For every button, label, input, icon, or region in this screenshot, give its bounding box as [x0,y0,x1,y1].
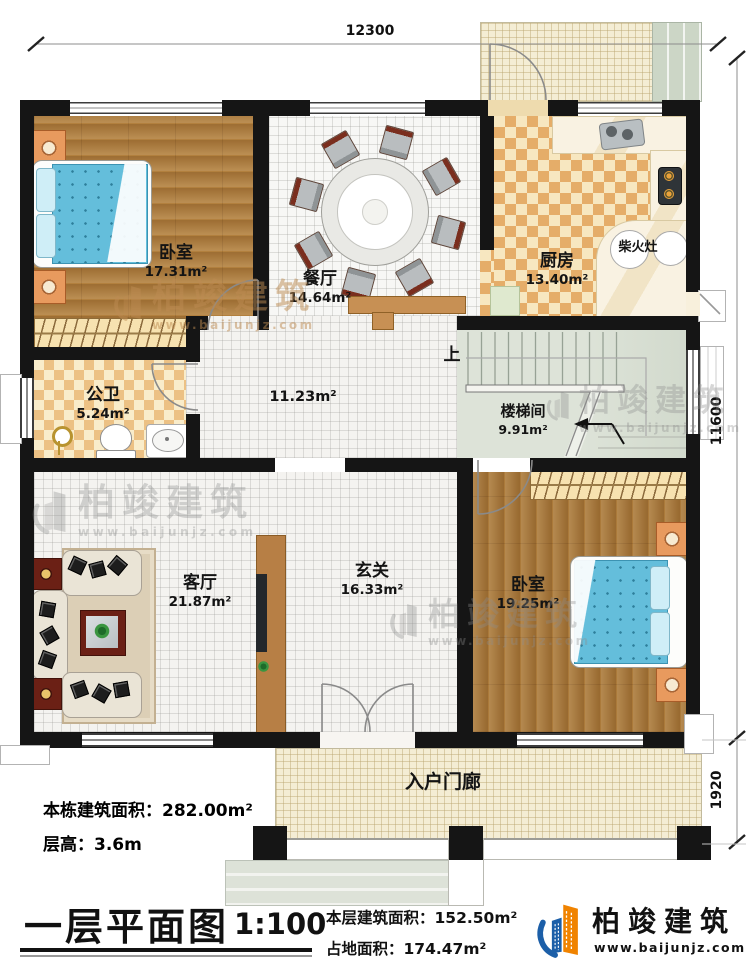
room-area: 5.24m² [76,406,129,424]
nightstand [656,668,688,702]
window [82,733,213,747]
wood-stove-label: 柴火灶 [618,240,657,257]
window [310,102,425,114]
window [578,102,662,114]
end-table [30,558,62,590]
wall [253,100,269,316]
nightstand [32,270,66,304]
room-area: 17.31m² [145,264,208,282]
title-underline-thin [20,955,312,957]
tv [256,574,267,652]
dimension-top: 12300 [346,23,395,39]
floor-drain [52,426,73,447]
floor-plan: 卧室 17.31m² 餐厅 14.64m² 厨房 13.40m² 柴火灶 公卫 … [0,0,750,970]
room-area: 13.40m² [526,272,589,290]
brand-logo-icon [534,898,586,960]
wall [530,458,686,472]
room-name: 玄关 [341,560,404,582]
nightstand [656,522,688,556]
room-name: 餐厅 [289,268,352,290]
room-name: 楼梯间 [498,402,547,422]
front-steps [225,860,453,906]
window [20,378,34,438]
stove-burner [664,171,674,181]
stove-burner [664,189,674,199]
bedroom-bottom-wardrobe [530,470,688,500]
room-label-stairwell: 楼梯间 9.91m² [498,402,547,438]
kitchen-appliance [490,286,520,316]
entry-porch-label: 入户门廊 [405,770,481,795]
hallway-floor [186,316,457,458]
entry-porch-floor [275,748,702,840]
brand-url: www.baijunjz.com [594,940,746,955]
door-opening [686,292,700,316]
window [517,733,643,747]
plant-small [258,660,269,673]
plant [93,622,111,640]
bed-pillow [650,612,670,656]
dimension-right-upper: 11600 [709,397,725,446]
bedroom-top-wardrobe [34,318,188,349]
room-name: 卧室 [145,242,208,264]
wall [480,100,494,250]
door-opening [488,100,548,116]
room-name: 客厅 [169,572,232,594]
room-area: 9.91m² [498,422,547,438]
wall [20,347,186,360]
sideboard [372,312,394,330]
wall [186,414,200,458]
wall [457,316,700,330]
side-door-step [698,290,726,322]
room-name: 卧室 [497,574,560,596]
room-label-foyer: 玄关 16.33m² [341,560,404,600]
room-label-kitchen: 厨房 13.40m² [526,250,589,290]
note-total-building-area: 本栋建筑面积：282.00m² [43,796,253,821]
basin-drain [165,437,169,441]
bed-pillow [36,168,56,212]
wall [457,458,473,748]
wall [425,100,488,116]
wall [20,458,275,472]
sideboard [348,296,466,314]
bed-blanket-fold [574,560,618,662]
end-table [30,678,62,710]
hallway-area-label: 11.23m² [269,388,336,407]
sofa-pillow [113,681,130,698]
brand-name: 柏竣建筑 [592,900,736,940]
note-floor-height: 层高：3.6m [43,830,142,855]
stairs-up-label: 上 [444,344,461,366]
room-label-bedroom-top: 卧室 17.31m² [145,242,208,282]
wall [258,316,269,330]
porch-column [677,826,711,860]
wall [548,100,578,116]
room-area: 21.87m² [169,594,232,612]
corner-niche [684,714,714,754]
room-name: 厨房 [526,250,589,272]
dimension-right-lower: 1920 [709,771,725,810]
door-opening [320,732,415,748]
porch-column [253,826,287,860]
room-label-bedroom-bottom: 卧室 19.25m² [497,574,560,614]
footprint-area-text: 占地面积：174.47m² [326,937,486,959]
room-label-bathroom: 公卫 5.24m² [76,384,129,424]
bed-blanket-fold [104,164,146,262]
floor-area-text: 本层建筑面积：152.50m² [326,906,517,928]
sofa-pillow [39,601,56,618]
room-name: 公卫 [76,384,129,406]
room-area: 16.33m² [341,582,404,600]
wall [345,458,457,472]
exterior-step [0,745,50,765]
back-porch-steps [652,22,702,102]
stairwell-floor [457,330,686,458]
back-porch [480,22,670,102]
window [686,350,700,434]
wall [686,100,700,292]
wood-stove-seat [653,231,688,266]
toilet-bowl [100,424,132,452]
sink-basin [606,126,617,137]
room-area: 19.25m² [497,596,560,614]
bed-pillow [650,566,670,610]
room-label-living: 客厅 21.87m² [169,572,232,612]
wall [186,316,200,362]
porch-column [449,826,483,860]
sheet-scale: 1:100 [234,907,326,941]
window [70,102,222,114]
room-label-dining: 餐厅 14.64m² [289,268,352,308]
window-sill [0,374,22,444]
sheet-title: 一层平面图 [24,896,229,951]
sink-basin [622,129,633,140]
room-area: 14.64m² [289,290,352,308]
dining-table-center [362,199,388,225]
bed-pillow [36,214,56,258]
entry-porch-edge [275,838,700,860]
